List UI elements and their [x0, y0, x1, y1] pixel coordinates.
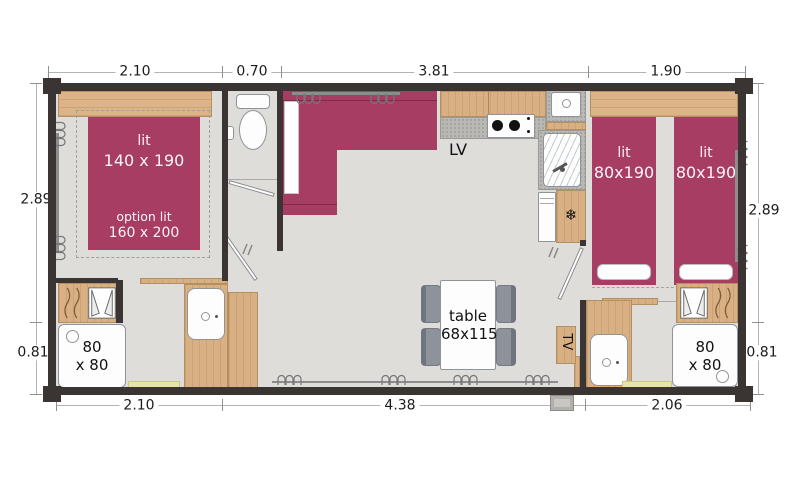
curtain-icon: [296, 90, 322, 109]
burner-dot-icon: [527, 117, 530, 120]
wall-bedroom2-bottom: [580, 300, 586, 387]
outer-wall-left: [48, 83, 56, 395]
chair: [421, 285, 441, 323]
freezer-snowflake-icon: ❄: [561, 206, 581, 224]
dining-table: table 68x115: [440, 280, 496, 370]
dim-right-1: 2.89: [744, 203, 783, 218]
twin-bed1-name: lit: [592, 145, 656, 163]
sink-faucet-icon: [562, 99, 571, 108]
outer-wall-bottom: [48, 387, 746, 395]
dim-bottom-2: 4.38: [380, 398, 419, 413]
twin-bed2-size: 80x190: [674, 163, 738, 183]
twin-headboard: [590, 91, 738, 117]
window-bar-bottom: [272, 381, 558, 383]
twin-bed1-label: lit 80x190: [592, 145, 656, 183]
dim-tick: [222, 399, 223, 411]
dim-top-2: 0.70: [232, 64, 271, 79]
master-bed-name: lit: [88, 133, 200, 151]
dim-tick: [222, 66, 223, 78]
dim-bottom-3: 2.06: [647, 398, 686, 413]
corner-post: [735, 78, 753, 94]
sofa-seam: [283, 204, 337, 205]
curtain-icon: [370, 90, 396, 109]
dim-tick: [281, 66, 282, 78]
basin-faucet-icon: [201, 312, 210, 321]
option-bed-name: option lit: [88, 209, 200, 225]
outer-wall-top: [48, 83, 746, 91]
corner-post: [43, 386, 61, 402]
option-bed-label: option lit 160 x 200: [88, 209, 200, 242]
twin-bed1-size: 80x190: [592, 163, 656, 183]
hanging-clothes-icon: [60, 286, 84, 324]
dim-tick: [30, 394, 42, 395]
shower-right-size-2: x 80: [673, 356, 737, 374]
door-hinge-marks: [546, 245, 562, 265]
hanging-clothes-icon: [711, 286, 735, 324]
dim-tick: [588, 66, 589, 78]
kitchen-cabinet-divider: [488, 92, 489, 116]
wall-bath-left-h: [56, 278, 118, 283]
dim-tick: [745, 66, 746, 78]
wall-wc-right: [277, 91, 283, 251]
option-bed-size: 160 x 200: [88, 225, 200, 243]
drainer-sink: [543, 133, 581, 187]
basin-dot: [616, 361, 619, 364]
dim-tick: [30, 322, 42, 323]
washer: [538, 192, 556, 242]
master-bed-label: lit 140 x 190: [88, 133, 200, 171]
shower-drain-icon: [66, 330, 79, 343]
burner-icon: [509, 120, 520, 131]
basin-dot: [215, 315, 218, 318]
entry-step-inner: [554, 399, 570, 407]
bed-foot-blanket: [679, 264, 733, 280]
drainer-faucet-base: [560, 167, 565, 172]
chair: [421, 328, 441, 366]
dim-tick: [585, 399, 586, 411]
master-bed-size: 140 x 190: [88, 151, 200, 171]
table-size: 68x115: [441, 325, 495, 343]
bed-foot-blanket: [597, 264, 651, 280]
sofa-side-table: [284, 101, 299, 194]
twin-bed2-name: lit: [674, 145, 738, 163]
dim-tick: [752, 394, 764, 395]
master-bed: lit 140 x 190 option lit 160 x 200: [88, 117, 200, 250]
dim-top-4: 1.90: [646, 64, 685, 79]
floorplan-canvas: 2.10 0.70 3.81 1.90 2.10 4.38 2.06 2.89 …: [0, 0, 796, 480]
wall-wc-left: [222, 91, 228, 281]
toilet-cistern: [236, 94, 270, 109]
burner-dot-icon: [527, 130, 530, 133]
wall-bedroom2-top: [580, 240, 586, 246]
counter-wood-strip: [546, 122, 586, 130]
dishwasher-label: LV: [440, 140, 476, 159]
twin-bed-2: lit 80x190: [674, 117, 738, 285]
dim-top-3: 3.81: [414, 64, 453, 79]
dim-top-1: 2.10: [115, 64, 154, 79]
shower-drain-icon: [716, 370, 729, 383]
dim-left-2: 0.81: [13, 345, 52, 360]
door-hinge-marks: [240, 242, 256, 262]
dim-bottom-1: 2.10: [119, 398, 158, 413]
basin-faucet-icon: [602, 358, 611, 367]
corner-post: [735, 386, 753, 402]
dim-tick: [752, 83, 764, 84]
washer-line: [540, 203, 554, 204]
dim-tick: [48, 66, 49, 78]
wall-bath-left-stub: [116, 280, 123, 323]
tall-cabinet-left: [228, 292, 258, 388]
washer-line: [540, 198, 554, 199]
chair: [496, 328, 516, 366]
shower-left-size-2: x 80: [59, 356, 125, 374]
mirror-door-icon: [88, 286, 116, 324]
twin-bed-1: lit 80x190: [592, 117, 656, 285]
shower-right-size-1: 80: [673, 338, 737, 356]
burner-icon: [492, 120, 503, 131]
dim-tick: [30, 83, 42, 84]
dim-tick: [752, 322, 764, 323]
dim-right-2: 0.81: [742, 345, 781, 360]
wc-door-threshold: [228, 179, 277, 180]
outer-wall-right: [738, 83, 746, 395]
twin-bed2-label: lit 80x190: [674, 145, 738, 183]
tv-label: TV: [558, 328, 574, 356]
chair: [496, 285, 516, 323]
corner-post: [43, 78, 61, 94]
toilet-bowl: [239, 110, 267, 150]
window-bar-left: [56, 133, 59, 251]
table-name: table: [441, 307, 495, 325]
mirror-door-icon: [680, 286, 708, 324]
